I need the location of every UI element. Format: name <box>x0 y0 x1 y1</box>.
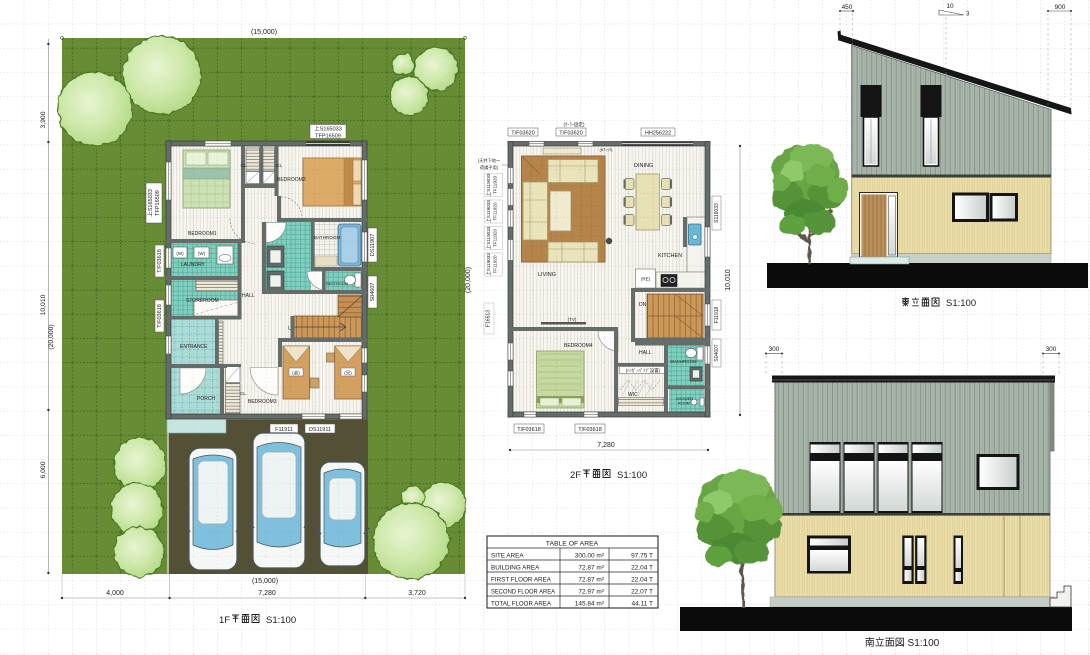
svg-text:22.07 T: 22.07 T <box>631 589 653 596</box>
svg-text:(天井下地～: (天井下地～ <box>478 157 500 164</box>
svg-text:(15,000): (15,000) <box>252 578 278 585</box>
svg-text:300.00 m²: 300.00 m² <box>575 553 605 560</box>
svg-text:FIRST FLOOR AREA: FIRST FLOOR AREA <box>491 577 552 584</box>
svg-text:SITE AREA: SITE AREA <box>491 553 524 560</box>
svg-text:TOTAL FLOOR AREA: TOTAL FLOOR AREA <box>491 601 552 608</box>
svg-text:3,900: 3,900 <box>40 111 47 128</box>
svg-text:荷揚子用): 荷揚子用) <box>480 164 499 171</box>
svg-text:2F: 2F <box>570 470 581 481</box>
svg-text:7,280: 7,280 <box>258 590 276 597</box>
svg-text:450: 450 <box>842 4 853 11</box>
svg-text:7,280: 7,280 <box>597 442 615 449</box>
svg-text:TF11920: TF11920 <box>493 202 498 220</box>
svg-text:S04607: S04607 <box>714 344 720 361</box>
svg-text:TABLE OF AREA: TABLE OF AREA <box>546 541 599 548</box>
svg-text:145.84 m²: 145.84 m² <box>575 601 605 608</box>
svg-text:TFP16509: TFP16509 <box>155 190 161 216</box>
svg-text:6,000: 6,000 <box>40 461 47 478</box>
svg-text:(20,000): (20,000) <box>48 324 55 349</box>
svg-text:44.11 T: 44.11 T <box>632 601 653 608</box>
svg-text:(15,000): (15,000) <box>251 29 277 36</box>
svg-text:TF11920: TF11920 <box>493 255 498 273</box>
svg-text:T/F03618: T/F03618 <box>157 249 163 273</box>
svg-text:10: 10 <box>946 3 954 10</box>
svg-text:SECOND FLOOR AREA: SECOND FLOOR AREA <box>491 589 556 596</box>
svg-text:300: 300 <box>1046 346 1057 353</box>
svg-text:F11918: F11918 <box>714 306 720 323</box>
svg-text:T/F03620: T/F03620 <box>511 131 535 137</box>
svg-text:S1:100: S1:100 <box>946 298 976 309</box>
svg-text:TF11920: TF11920 <box>493 229 498 247</box>
svg-text:T/F03618: T/F03618 <box>517 427 541 433</box>
svg-text:T/F03618: T/F03618 <box>157 304 163 328</box>
svg-text:72.97 m²: 72.97 m² <box>578 589 604 596</box>
svg-text:上S119033: 上S119033 <box>485 226 491 249</box>
svg-text:S1:100: S1:100 <box>617 470 647 481</box>
svg-text:(ｸｰﾗｰ固定): (ｸｰﾗｰ固定) <box>564 121 585 128</box>
svg-text:22.04 T: 22.04 T <box>631 577 653 584</box>
svg-text:72.87 m²: 72.87 m² <box>578 577 604 584</box>
svg-text:F16513: F16513 <box>486 310 492 327</box>
svg-text:上S165033: 上S165033 <box>314 125 342 133</box>
svg-text:DS11907: DS11907 <box>370 234 376 257</box>
svg-text:T/F03620: T/F03620 <box>559 131 583 137</box>
svg-text:10,010: 10,010 <box>725 269 732 291</box>
svg-text:3,720: 3,720 <box>408 590 426 597</box>
svg-text:97.75 T: 97.75 T <box>631 553 653 560</box>
svg-text:(20,000): (20,000) <box>465 267 472 293</box>
svg-text:S04607: S04607 <box>370 283 376 302</box>
svg-text:300: 300 <box>769 346 780 353</box>
svg-text:900: 900 <box>1055 4 1066 11</box>
svg-text:TFP16509: TFP16509 <box>315 134 341 140</box>
svg-text:HH256222: HH256222 <box>645 131 671 137</box>
svg-text:S1:100: S1:100 <box>266 615 296 626</box>
svg-text:南立面図 S1:100: 南立面図 S1:100 <box>865 636 940 649</box>
svg-text:72.87 m²: 72.87 m² <box>578 565 604 572</box>
svg-text:S119033: S119033 <box>714 203 720 223</box>
svg-text:上S119033: 上S119033 <box>485 200 491 223</box>
svg-text:上S119033: 上S119033 <box>485 253 491 276</box>
svg-text:T/F03618: T/F03618 <box>578 427 602 433</box>
svg-text:上S119033: 上S119033 <box>485 173 491 196</box>
svg-text:4,000: 4,000 <box>106 590 124 597</box>
svg-text:10,010: 10,010 <box>40 294 47 315</box>
svg-text:TF11920: TF11920 <box>493 176 498 194</box>
svg-text:22.04 T: 22.04 T <box>631 565 653 572</box>
svg-text:上S165033: 上S165033 <box>146 189 154 217</box>
svg-text:1F: 1F <box>219 615 230 626</box>
svg-text:BUILDING AREA: BUILDING AREA <box>491 565 540 572</box>
